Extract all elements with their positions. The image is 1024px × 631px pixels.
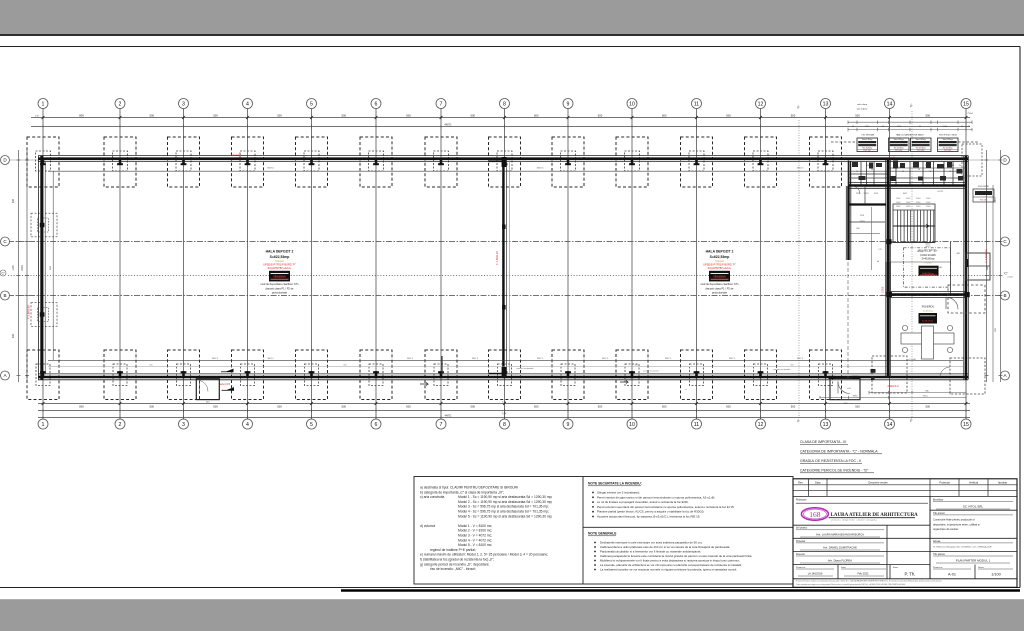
svg-text:GRADUL DE REZISTENTA LA FOC -: GRADUL DE REZISTENTA LA FOC - II bbox=[800, 459, 861, 463]
svg-text:3667,5: 3667,5 bbox=[537, 358, 544, 360]
svg-text:17x18: 17x18 bbox=[916, 202, 921, 204]
svg-text:Descriere revizie: Descriere revizie bbox=[868, 480, 888, 484]
svg-text:S=622,53mp: S=622,53mp bbox=[710, 255, 730, 259]
svg-text:Data: Data bbox=[815, 480, 821, 484]
svg-text:90: 90 bbox=[929, 171, 931, 173]
svg-text:500: 500 bbox=[926, 113, 931, 117]
svg-text:Dezbaterile interioare si cele: Dezbaterile interioare si cele exterioar… bbox=[600, 541, 703, 545]
svg-text:2170: 2170 bbox=[874, 193, 878, 195]
svg-text:7,94: 7,94 bbox=[502, 413, 507, 416]
svg-text:17x18: 17x18 bbox=[906, 202, 911, 204]
svg-text:6: 6 bbox=[375, 422, 378, 428]
svg-text:Modul 5 - V = 8100 mc;: Modul 5 - V = 8100 mc; bbox=[458, 543, 492, 547]
svg-text:8x(p/1HB/7B7)+4/GJ+: 8x(p/1HB/7B7)+4/GJ+ bbox=[268, 267, 292, 270]
svg-text:90: 90 bbox=[856, 171, 858, 173]
svg-text:168: 168 bbox=[809, 510, 821, 519]
svg-text:500: 500 bbox=[926, 405, 931, 409]
svg-text:17x18: 17x18 bbox=[916, 206, 921, 208]
svg-text:500: 500 bbox=[213, 405, 218, 409]
svg-text:11: 11 bbox=[694, 422, 699, 428]
svg-text:C': C' bbox=[1, 271, 4, 275]
svg-text:13: 13 bbox=[823, 422, 829, 428]
svg-text:ANEXA 2: ANEXA 2 bbox=[887, 384, 899, 388]
svg-text:500: 500 bbox=[471, 113, 476, 117]
svg-text:organizare de santier: organizare de santier bbox=[933, 527, 958, 531]
svg-text:10: 10 bbox=[629, 101, 635, 107]
svg-text:P01 180: P01 180 bbox=[944, 150, 951, 152]
svg-text:3667,5: 3667,5 bbox=[797, 358, 804, 360]
svg-text:Stingat inertezi uzr 5 imprate: Stingat inertezi uzr 5 impratejezij; bbox=[597, 491, 640, 495]
svg-text:Data: Data bbox=[841, 566, 846, 569]
svg-text:500: 500 bbox=[791, 113, 796, 117]
svg-text:poarta sectionala: poarta sectionala bbox=[643, 370, 659, 373]
svg-text:g) categorie pericol de incend: g) categorie pericol de incendiu „D”, de… bbox=[420, 562, 490, 566]
svg-text:9: 9 bbox=[567, 422, 570, 428]
svg-text:Rev.: Rev. bbox=[798, 480, 803, 484]
svg-text:Modul 1 - V = 8100 mc;: Modul 1 - V = 8100 mc; bbox=[458, 524, 492, 528]
svg-text:905: 905 bbox=[344, 364, 347, 366]
svg-text:Desenat: Desenat bbox=[796, 553, 805, 556]
svg-text:Plansee partial (peste birouri: Plansee partial (peste birouri, A1/CS, p… bbox=[597, 510, 704, 514]
svg-text:P04 OFICIU: P04 OFICIU bbox=[978, 186, 989, 188]
svg-text:815,5: 815,5 bbox=[995, 196, 997, 202]
svg-text:Tcameri: Tcameri bbox=[715, 259, 725, 263]
svg-text:2170: 2170 bbox=[864, 193, 870, 195]
svg-text:500: 500 bbox=[342, 405, 347, 409]
svg-text:500: 500 bbox=[726, 113, 731, 117]
svg-text:500x300x4: 500x300x4 bbox=[274, 276, 287, 279]
svg-text:8: 8 bbox=[503, 422, 506, 428]
svg-text:LA 140/2019: LA 140/2019 bbox=[808, 572, 823, 576]
svg-text:176,5: 176,5 bbox=[865, 126, 870, 128]
svg-text:regimul de inaltime P+E partia: regimul de inaltime P+E partial; bbox=[430, 548, 476, 552]
svg-text:3667,5: 3667,5 bbox=[267, 167, 274, 169]
svg-text:1/100: 1/100 bbox=[991, 573, 1001, 577]
svg-text:800: 800 bbox=[79, 405, 84, 409]
svg-text:Adresa: Adresa bbox=[933, 540, 941, 543]
svg-text:17x18: 17x18 bbox=[896, 202, 901, 204]
svg-text:15: 15 bbox=[963, 422, 969, 428]
svg-text:B: B bbox=[1003, 293, 1006, 298]
svg-text:8: 8 bbox=[503, 101, 506, 107]
svg-text:periculozitate: periculozitate bbox=[272, 290, 288, 294]
svg-text:74: 74 bbox=[968, 126, 970, 128]
svg-text:S=48,20mp: S=48,20mp bbox=[923, 310, 934, 312]
svg-text:Sm=1.45mp: Sm=1.45mp bbox=[943, 139, 953, 141]
svg-text:Proiectat: Proiectat bbox=[939, 480, 950, 484]
svg-text:15: 15 bbox=[963, 101, 969, 107]
svg-text:6: 6 bbox=[375, 101, 378, 107]
svg-text:CASA SCARII: CASA SCARII bbox=[920, 254, 936, 257]
svg-text:500: 500 bbox=[277, 113, 282, 117]
svg-text:500: 500 bbox=[213, 113, 218, 117]
svg-text:Inaltimea libera a usilor plaf: Inaltimea libera a usilor plafonate este… bbox=[600, 545, 730, 549]
svg-text:P01 180: P01 180 bbox=[917, 150, 924, 152]
svg-text:Modul 3 - V = 4072 mc;: Modul 3 - V = 4072 mc; bbox=[458, 534, 492, 538]
svg-text:HALA DEPOZIT 2: HALA DEPOZIT 2 bbox=[266, 250, 294, 254]
svg-text:3667,5: 3667,5 bbox=[472, 358, 479, 360]
svg-text:7: 7 bbox=[440, 101, 443, 107]
svg-text:40: 40 bbox=[877, 261, 879, 263]
svg-text:90: 90 bbox=[949, 171, 951, 173]
svg-text:PLAN PARTER MODUL 1: PLAN PARTER MODUL 1 bbox=[956, 559, 991, 563]
svg-text:3667,5: 3667,5 bbox=[407, 358, 414, 360]
svg-text:2: 2 bbox=[119, 422, 122, 428]
svg-text:P03 OFICIU / SECE: P03 OFICIU / SECE bbox=[939, 134, 958, 136]
svg-text:arhitectura · design interior: arhitectura · design interior · urbanism… bbox=[831, 519, 878, 522]
svg-text:3: 3 bbox=[182, 422, 185, 428]
svg-text:CLASA DE IMPORTANTA - III: CLASA DE IMPORTANTA - III bbox=[800, 440, 846, 444]
svg-text:risc de incendiu: „MIC” - biro: risc de incendiu: „MIC” - birouri; bbox=[430, 567, 476, 571]
svg-text:Inaltimea parapetului la feres: Inaltimea parapetului la ferestre este c… bbox=[600, 554, 753, 558]
svg-text:c) aria construita: c) aria construita bbox=[420, 495, 445, 499]
svg-text:500: 500 bbox=[471, 405, 476, 409]
svg-text:17x18: 17x18 bbox=[926, 202, 931, 204]
svg-text:2170: 2170 bbox=[860, 221, 866, 223]
svg-text:Modul 2 - V = 8100 mc;: Modul 2 - V = 8100 mc; bbox=[458, 529, 492, 533]
svg-text:500: 500 bbox=[406, 113, 411, 117]
svg-text:17x18: 17x18 bbox=[916, 198, 921, 200]
svg-text:12: 12 bbox=[758, 422, 764, 428]
svg-text:periculozitate: periculozitate bbox=[712, 290, 728, 294]
svg-text:960: 960 bbox=[856, 228, 859, 230]
svg-text:3: 3 bbox=[182, 101, 185, 107]
svg-text:F 1.50/2.10: F 1.50/2.10 bbox=[984, 249, 988, 263]
svg-text:F 1.50/2.10: F 1.50/2.10 bbox=[495, 251, 499, 265]
svg-text:500: 500 bbox=[150, 113, 155, 117]
svg-text:905: 905 bbox=[635, 364, 638, 366]
svg-text:depozit clasa P1 / P2 de: depozit clasa P1 / P2 de bbox=[266, 286, 295, 290]
svg-text:Titlu plansa: Titlu plansa bbox=[933, 553, 945, 556]
svg-text:La realizarea lucrarilor se vo: La realizarea lucrarilor se vor respecta… bbox=[600, 568, 737, 572]
svg-text:4: 4 bbox=[246, 422, 249, 428]
svg-text:SC VITOL SRL: SC VITOL SRL bbox=[963, 504, 984, 508]
svg-text:10: 10 bbox=[629, 422, 635, 428]
svg-text:poarta sectionala: poarta sectionala bbox=[774, 368, 791, 371]
svg-text:d) volumul: d) volumul bbox=[420, 524, 435, 528]
svg-text:depozitare, imprejmuire teren,: depozitare, imprejmuire teren, utilitati… bbox=[933, 522, 980, 526]
svg-text:2170: 2170 bbox=[860, 215, 864, 217]
svg-text:Orice reproducere,copiere sau: Orice reproducere,copiere sau citare,poa… bbox=[796, 583, 906, 586]
svg-text:44871: 44871 bbox=[445, 415, 452, 418]
svg-text:1115: 1115 bbox=[50, 265, 52, 270]
svg-text:e) numarul maxim de utilizator: e) numarul maxim de utilizatori: Modul 1… bbox=[420, 553, 548, 557]
svg-text:Modul 1 - Sc = 1190,90 mp si a: Modul 1 - Sc = 1190,90 mp si aria desfas… bbox=[458, 495, 552, 499]
svg-text:F 3.60/3.60: F 3.60/3.60 bbox=[27, 305, 31, 319]
svg-text:P01 180: P01 180 bbox=[864, 150, 871, 152]
svg-text:Modul 2 - Sc = 1190,90 mp si a: Modul 2 - Sc = 1190,90 mp si aria desfas… bbox=[458, 500, 552, 504]
svg-text:Modul 4 - Sc = 596,75 mp si ar: Modul 4 - Sc = 596,75 mp si aria desfasu… bbox=[458, 510, 549, 514]
svg-text:UPSE/E-P7P31/P BSRD “P”: UPSE/E-P7P31/P BSRD “P” bbox=[703, 263, 736, 267]
svg-text:CATEGORIE PERICOL DE INCENDIU: CATEGORIE PERICOL DE INCENDIU - “D” bbox=[800, 469, 869, 473]
svg-text:Acoperis autoportant fara pod,: Acoperis autoportant fara pod, tip sarpa… bbox=[597, 515, 700, 519]
svg-text:500: 500 bbox=[406, 405, 411, 409]
svg-text:175: 175 bbox=[878, 249, 881, 251]
svg-text:4: 4 bbox=[246, 101, 249, 107]
svg-text:17x18: 17x18 bbox=[896, 198, 901, 200]
svg-text:3667,5: 3667,5 bbox=[602, 358, 609, 360]
svg-text:12,35: 12,35 bbox=[925, 165, 931, 167]
svg-text:Prezentul Proiect, realizat ca: Prezentul Proiect, realizat ca urmatoare… bbox=[796, 580, 942, 583]
svg-text:Feb.2022: Feb.2022 bbox=[858, 572, 870, 576]
svg-text:44871: 44871 bbox=[444, 123, 452, 127]
svg-text:90: 90 bbox=[902, 171, 904, 173]
svg-text:8x(p/1HB/7B7)+4/GJ+: 8x(p/1HB/7B7)+4/GJ+ bbox=[708, 267, 732, 270]
svg-text:arie=4.5: arie=4.5 bbox=[220, 382, 231, 386]
svg-text:3667,5: 3667,5 bbox=[665, 358, 672, 360]
svg-text:500: 500 bbox=[791, 405, 796, 409]
svg-text:Faza: Faza bbox=[893, 567, 899, 569]
svg-text:Arh. LAURA MARIA BOANGAR BURCA: Arh. LAURA MARIA BOANGAR BURCA bbox=[816, 533, 864, 537]
svg-text:112,5: 112,5 bbox=[897, 126, 902, 128]
svg-text:73,64: 73,64 bbox=[967, 113, 973, 115]
svg-text:500: 500 bbox=[598, 113, 603, 117]
svg-text:2240: 2240 bbox=[21, 265, 24, 271]
svg-text:Proiectat: Proiectat bbox=[796, 540, 805, 543]
svg-text:mod de depozitare clasificat:: mod de depozitare clasificat: ST1 bbox=[700, 282, 739, 286]
svg-text:212,5: 212,5 bbox=[943, 126, 948, 128]
svg-text:HALA DEPOZIT 1: HALA DEPOZIT 1 bbox=[706, 250, 734, 254]
svg-text:40: 40 bbox=[852, 126, 854, 128]
svg-text:F 1.50/E: F 1.50/E bbox=[883, 286, 885, 295]
svg-text:Scara: Scara bbox=[978, 566, 984, 569]
svg-text:17x18: 17x18 bbox=[896, 206, 901, 208]
svg-text:500: 500 bbox=[662, 405, 667, 409]
svg-text:P01 RECEPTIE+: P01 RECEPTIE+ bbox=[918, 250, 938, 253]
svg-text:TABLOU SANITATE/GE SAN.P.: TABLOU SANITATE/GE SAN.P. bbox=[896, 133, 925, 136]
svg-text:90: 90 bbox=[918, 169, 920, 171]
svg-text:a) destinatia si tipul: CLADIR: a) destinatia si tipul: CLADIRI PENTRU D… bbox=[420, 486, 518, 490]
svg-text:Tcameri: Tcameri bbox=[275, 259, 285, 263]
svg-text:B: B bbox=[3, 293, 6, 298]
svg-text:Pereti exteriori neportanti di: Pereti exteriori neportanti din panouri … bbox=[597, 505, 735, 509]
svg-text:P03 BIROU: P03 BIROU bbox=[922, 306, 935, 309]
svg-text:600: 600 bbox=[12, 333, 15, 338]
svg-text:17x18: 17x18 bbox=[906, 198, 911, 200]
svg-text:A-01: A-01 bbox=[948, 573, 956, 577]
svg-text:Pardoseala circulatiilor si a: Pardoseala circulatiilor si a ferestrelo… bbox=[600, 550, 701, 554]
svg-text:40: 40 bbox=[882, 126, 884, 128]
svg-text:750,5: 750,5 bbox=[922, 395, 928, 397]
svg-text:2: 2 bbox=[119, 101, 122, 107]
svg-text:NOTE SECURITATE LA INCENDIU:: NOTE SECURITATE LA INCENDIU: bbox=[588, 482, 642, 486]
svg-text:arie=4.5: arie=4.5 bbox=[231, 153, 242, 157]
svg-text:500: 500 bbox=[342, 113, 347, 117]
svg-text:b) categoria de importanta „C”: b) categoria de importanta „C” si clasa … bbox=[420, 490, 504, 494]
svg-text:Sm=1.45mp: Sm=1.45mp bbox=[862, 139, 872, 141]
svg-text:905: 905 bbox=[150, 364, 153, 366]
svg-text:13: 13 bbox=[823, 101, 829, 107]
svg-text:Proiect nr.: Proiect nr. bbox=[933, 566, 943, 569]
svg-text:12: 12 bbox=[758, 101, 764, 107]
svg-text:Sm=1.45mp: Sm=1.45mp bbox=[894, 139, 904, 141]
svg-text:1: 1 bbox=[42, 101, 45, 107]
svg-text:14: 14 bbox=[887, 101, 893, 107]
svg-text:500: 500 bbox=[855, 113, 860, 117]
svg-text:mod de depozitare clasificat:: mod de depozitare clasificat: ST1 bbox=[260, 282, 299, 286]
svg-text:poarta sectionala: poarta sectionala bbox=[517, 367, 534, 370]
svg-text:UPSE/E-P7P31/P BSRD “P”: UPSE/E-P7P31/P BSRD “P” bbox=[263, 263, 296, 267]
svg-text:P01 VESTIAR: P01 VESTIAR bbox=[862, 133, 875, 136]
svg-text:500: 500 bbox=[662, 113, 667, 117]
svg-text:905: 905 bbox=[791, 364, 794, 366]
svg-text:Titlu proiect: Titlu proiect bbox=[933, 512, 945, 515]
svg-text:40: 40 bbox=[961, 126, 963, 128]
svg-text:2,024: 2,024 bbox=[1007, 277, 1013, 279]
svg-text:Beneficiar: Beneficiar bbox=[933, 498, 943, 501]
svg-text:Pereti interiori din gips-cart: Pereti interiori din gips-carton si din … bbox=[597, 495, 715, 499]
svg-text:Sm=1.45mp: Sm=1.45mp bbox=[916, 139, 926, 141]
svg-text:2170: 2170 bbox=[856, 193, 860, 195]
svg-text:T3, P464,Lotul 1,Bragadiru, Il: T3, P464,Lotul 1,Bragadiru, Ilfov CN.234… bbox=[933, 545, 992, 548]
svg-text:La executie, planurile de arhi: La executie, planurile de arhitectura se… bbox=[600, 563, 742, 567]
svg-text:Modul 3 - Sc = 596,75 mp si ar: Modul 3 - Sc = 596,75 mp si aria desfasu… bbox=[458, 505, 549, 509]
svg-text:17x18: 17x18 bbox=[926, 206, 931, 208]
svg-text:S=45,80mp: S=45,80mp bbox=[922, 257, 935, 260]
svg-text:500: 500 bbox=[277, 405, 282, 409]
svg-text:14: 14 bbox=[887, 422, 893, 428]
svg-text:f) stabilitatea la foc (gradul: f) stabilitatea la foc (gradul de rezist… bbox=[420, 558, 494, 562]
svg-text:Tcameri: Tcameri bbox=[924, 262, 932, 265]
svg-text:500: 500 bbox=[855, 405, 860, 409]
svg-text:+0.75: +0.75 bbox=[937, 191, 943, 193]
svg-text:P04 180: P04 180 bbox=[980, 200, 988, 202]
svg-text:depozit clasa P1 / P2 de: depozit clasa P1 / P2 de bbox=[706, 286, 735, 290]
svg-text:cale rulare: cale rulare bbox=[857, 103, 868, 106]
svg-text:Verificat: Verificat bbox=[969, 480, 979, 484]
svg-text:9: 9 bbox=[567, 101, 570, 107]
svg-text:193,5: 193,5 bbox=[852, 395, 858, 397]
svg-text:17x18: 17x18 bbox=[926, 198, 931, 200]
svg-text:Arh. DANIEL DUMITRACHE: Arh. DANIEL DUMITRACHE bbox=[823, 546, 857, 550]
svg-text:Mobilierul si echipamentele vo: Mobilierul si echipamentele vor fi fixat… bbox=[600, 559, 740, 563]
svg-text:3667,5: 3667,5 bbox=[537, 167, 544, 169]
svg-text:3667,5: 3667,5 bbox=[212, 358, 219, 360]
svg-text:500: 500 bbox=[534, 113, 539, 117]
svg-text:500x300x4: 500x300x4 bbox=[714, 276, 727, 279]
svg-text:sus 40: sus 40 bbox=[889, 157, 895, 159]
svg-text:P. Th.: P. Th. bbox=[904, 572, 915, 577]
svg-text:17x18: 17x18 bbox=[906, 206, 911, 208]
svg-text:NOTE GENERALE: NOTE GENERALE bbox=[588, 532, 617, 536]
svg-text:500: 500 bbox=[150, 405, 155, 409]
svg-text:800: 800 bbox=[79, 113, 84, 117]
svg-text:C': C' bbox=[1004, 271, 1008, 275]
svg-text:Arh. Diana FLOREA: Arh. Diana FLOREA bbox=[828, 559, 852, 563]
svg-text:Modul 4 - V = 4072 mc;: Modul 4 - V = 4072 mc; bbox=[458, 538, 492, 542]
svg-text:CATEGORIA DE IMPORTANTA - “C”: CATEGORIA DE IMPORTANTA - “C” - NORMALA bbox=[800, 450, 878, 454]
svg-text:90: 90 bbox=[871, 169, 873, 171]
svg-text:5: 5 bbox=[310, 422, 313, 428]
svg-text:cu rol de limitare a propagari: cu rol de limitare a propagarii incendii… bbox=[597, 500, 689, 504]
svg-text:500: 500 bbox=[726, 405, 731, 409]
svg-text:Construire Hale pentru product: Construire Hale pentru productie si bbox=[933, 518, 975, 522]
svg-text:Modul 5 - Sc = 1190,90 mp si a: Modul 5 - Sc = 1190,90 mp si aria desfas… bbox=[458, 514, 552, 518]
svg-text:5: 5 bbox=[310, 101, 313, 107]
svg-text:500: 500 bbox=[598, 405, 603, 409]
svg-text:arie rudare: arie rudare bbox=[857, 108, 868, 111]
svg-text:40: 40 bbox=[919, 126, 921, 128]
svg-text:605,5: 605,5 bbox=[925, 243, 931, 245]
svg-text:11: 11 bbox=[694, 101, 699, 107]
svg-text:1145: 1145 bbox=[12, 265, 15, 271]
svg-text:S=622,53mp: S=622,53mp bbox=[270, 255, 290, 259]
svg-text:Proiect nr.: Proiect nr. bbox=[796, 566, 806, 569]
svg-text:Proiectant: Proiectant bbox=[796, 498, 807, 501]
svg-text:3667,5: 3667,5 bbox=[729, 358, 736, 360]
svg-text:7: 7 bbox=[440, 422, 443, 428]
svg-text:600: 600 bbox=[12, 198, 15, 203]
svg-text:3667,5: 3667,5 bbox=[797, 167, 804, 169]
svg-text:P01 180: P01 180 bbox=[895, 150, 902, 152]
svg-text:90: 90 bbox=[959, 165, 961, 167]
svg-text:500: 500 bbox=[534, 405, 539, 409]
svg-text:1: 1 bbox=[42, 422, 45, 428]
svg-text:Sef proiect: Sef proiect bbox=[796, 527, 807, 530]
svg-text:+/- 0.00: +/- 0.00 bbox=[908, 359, 916, 361]
svg-text:3667,5: 3667,5 bbox=[267, 358, 274, 360]
svg-text:Aprobat: Aprobat bbox=[998, 480, 1007, 484]
svg-text:S=48,20mp: S=48,20mp bbox=[922, 321, 934, 323]
